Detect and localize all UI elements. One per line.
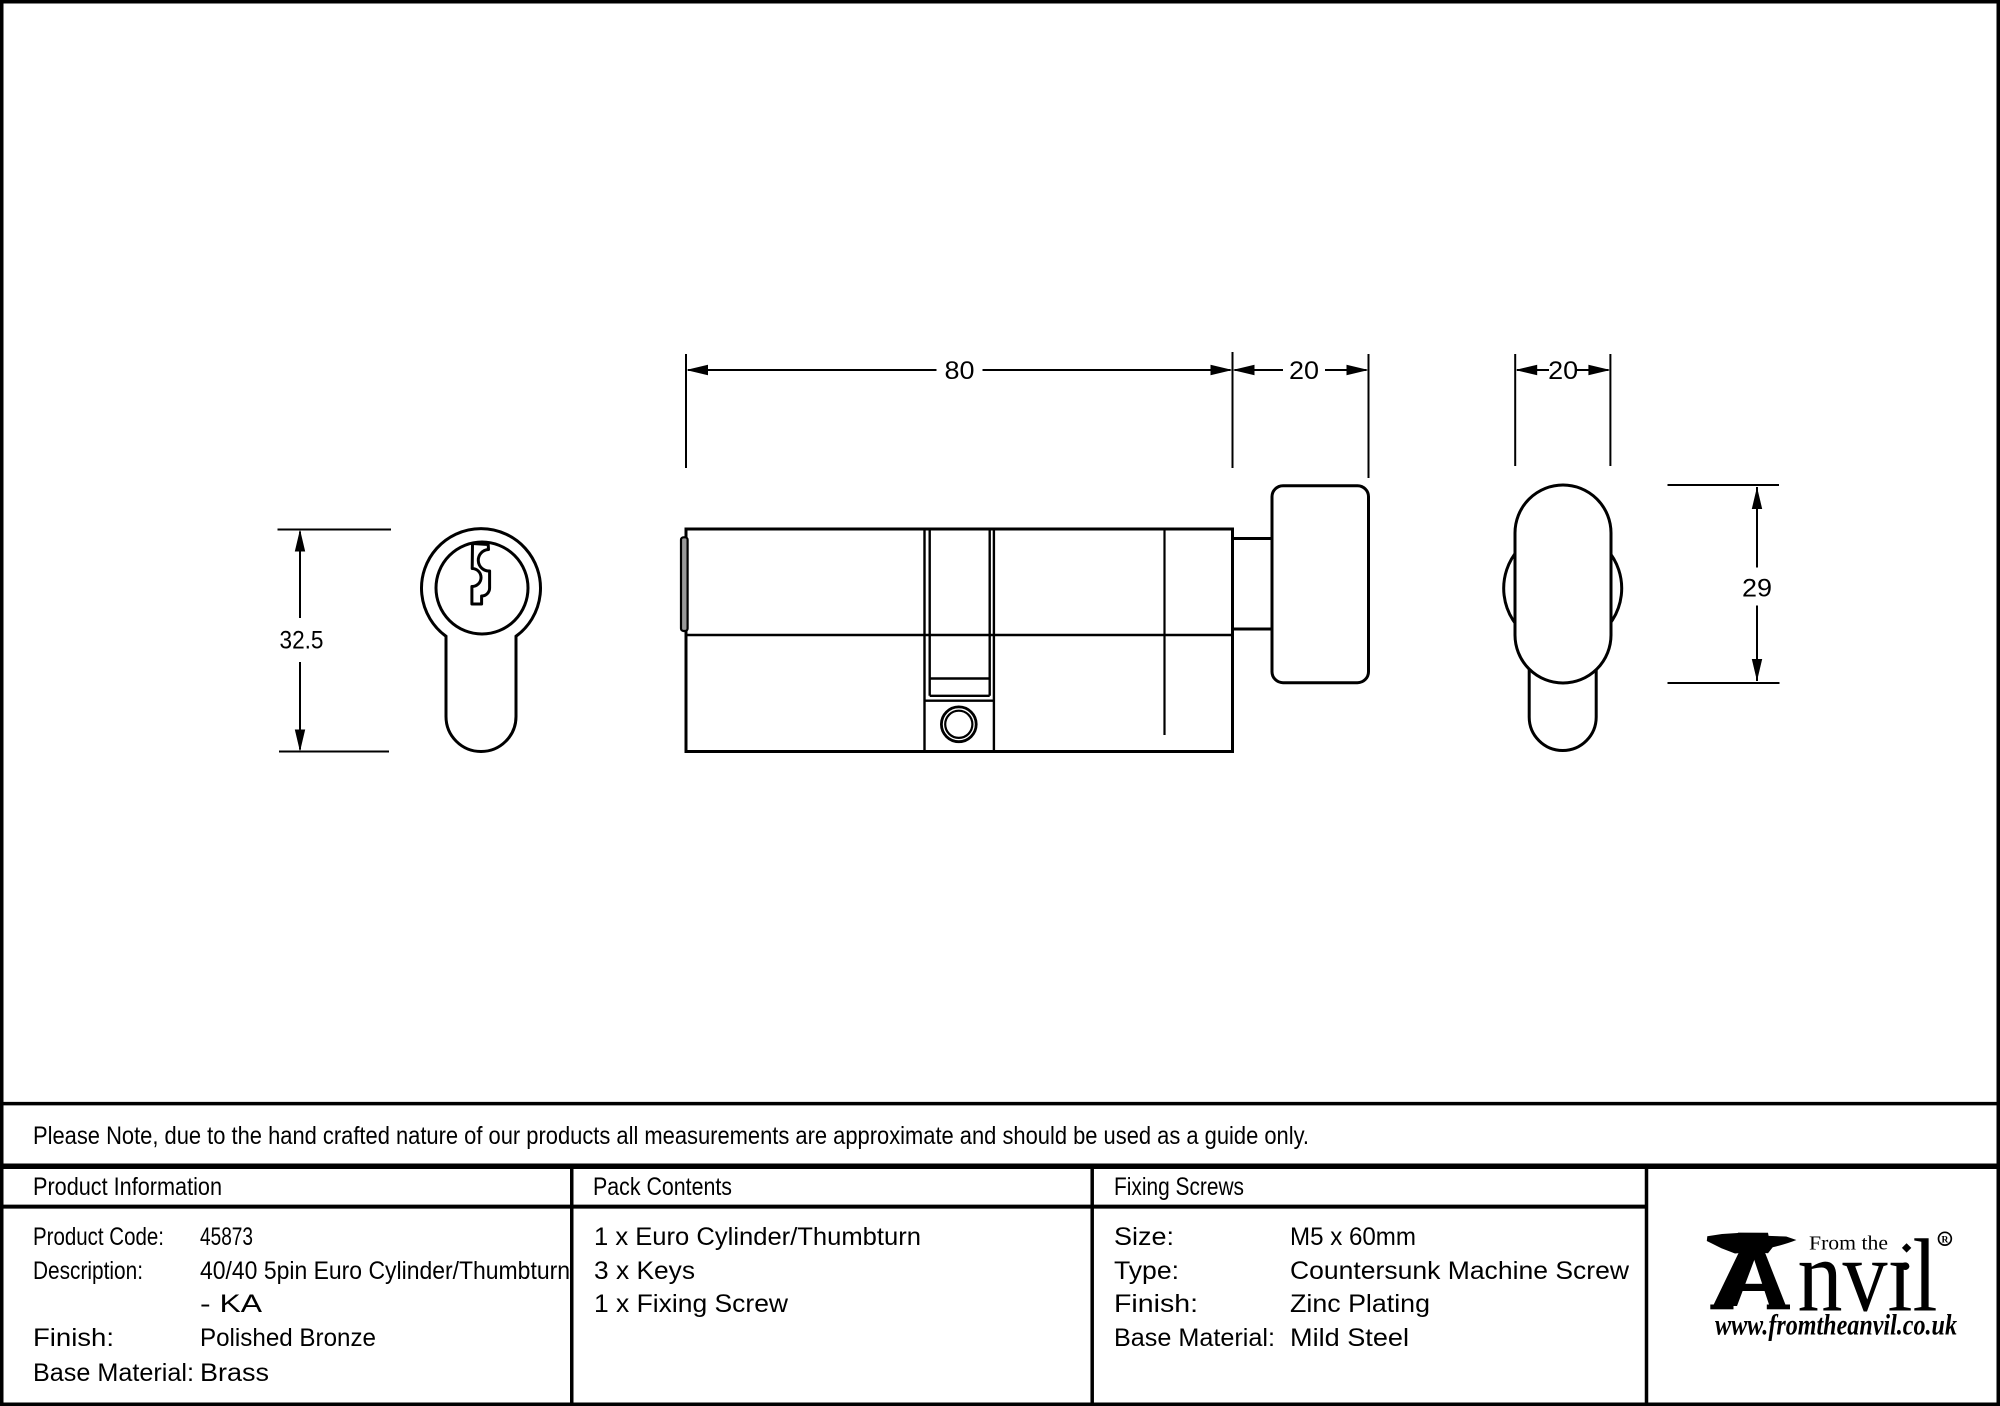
svg-text:Product Information: Product Information xyxy=(33,1173,222,1201)
svg-text:Type:: Type: xyxy=(1114,1257,1179,1285)
svg-text:Polished Bronze: Polished Bronze xyxy=(200,1324,376,1352)
svg-text:Brass: Brass xyxy=(200,1359,269,1387)
svg-text:- KA: - KA xyxy=(200,1290,262,1318)
svg-text:www.fromtheanvil.co.uk: www.fromtheanvil.co.uk xyxy=(1715,1309,1957,1342)
svg-text:32.5: 32.5 xyxy=(280,627,324,655)
svg-text:Pack Contents: Pack Contents xyxy=(593,1173,732,1201)
svg-text:Mild Steel: Mild Steel xyxy=(1290,1324,1409,1352)
svg-text:Countersunk Machine Screw: Countersunk Machine Screw xyxy=(1290,1257,1630,1285)
svg-text:80: 80 xyxy=(945,357,975,385)
svg-text:40/40 5pin Euro Cylinder/Thumb: 40/40 5pin Euro Cylinder/Thumbturn xyxy=(200,1257,570,1285)
svg-text:20: 20 xyxy=(1289,357,1319,385)
svg-text:Fixing Screws: Fixing Screws xyxy=(1114,1173,1244,1201)
svg-text:Zinc Plating: Zinc Plating xyxy=(1290,1290,1430,1318)
svg-text:45873: 45873 xyxy=(200,1223,253,1251)
svg-text:Description:: Description: xyxy=(33,1257,143,1285)
svg-text:Base Material:: Base Material: xyxy=(33,1359,194,1387)
svg-text:R: R xyxy=(1941,1236,1948,1246)
svg-text:20: 20 xyxy=(1548,357,1578,385)
svg-text:1 x Euro Cylinder/Thumbturn: 1 x Euro Cylinder/Thumbturn xyxy=(594,1223,921,1251)
svg-text:Product Code:: Product Code: xyxy=(33,1223,164,1251)
svg-text:Size:: Size: xyxy=(1114,1223,1174,1251)
svg-text:M5 x 60mm: M5 x 60mm xyxy=(1290,1223,1416,1251)
svg-text:Base Material:: Base Material: xyxy=(1114,1324,1275,1352)
svg-text:Finish:: Finish: xyxy=(1114,1290,1198,1318)
svg-text:29: 29 xyxy=(1742,575,1772,603)
svg-text:Finish:: Finish: xyxy=(33,1324,114,1352)
svg-text:1 x Fixing Screw: 1 x Fixing Screw xyxy=(594,1290,789,1318)
svg-text:Please Note, due to the hand c: Please Note, due to the hand crafted nat… xyxy=(33,1122,1309,1150)
svg-text:3 x Keys: 3 x Keys xyxy=(594,1257,695,1285)
